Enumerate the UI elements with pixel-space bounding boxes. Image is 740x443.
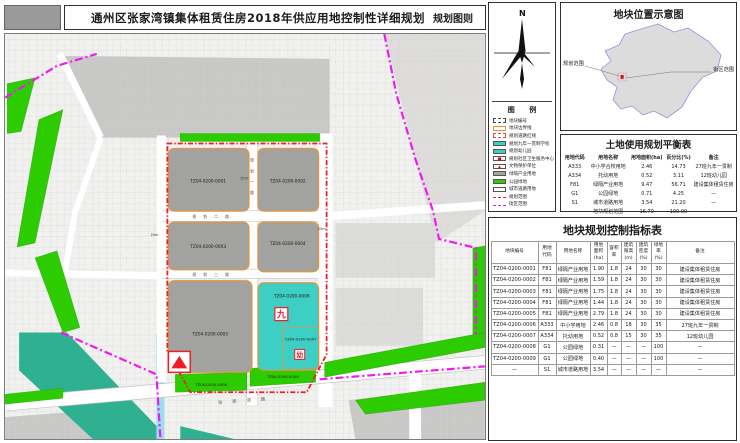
plot-label: TZ04-0200-0006 (273, 294, 310, 300)
kindergarten-glyph: 幼 (296, 350, 303, 359)
title-bar-stamp-box (4, 5, 61, 30)
legend-label: 街区范围 (509, 201, 527, 207)
legend-item: 街区范围 (493, 201, 555, 209)
legend-item: 绿隔产业用地 (493, 170, 555, 178)
legend-label: 城市道路用地 (509, 186, 536, 192)
plot-label: TZ04-0200-0005 (191, 332, 228, 338)
plot-label: TZ04-0200-0001 (189, 178, 226, 184)
location-map-panel: 地块位置示意图 规划范围 街区范围 (560, 2, 737, 131)
legend-item: 规划道路红线 (493, 132, 555, 140)
legend-swatch-icon (493, 141, 506, 146)
block-scope-label: 街区范围 (713, 65, 734, 73)
land-use-balance-table: 用地代码用地名称用地面积(ha)百分比(%)备注A333中小学合校用地2.461… (563, 153, 735, 216)
legend-swatch-icon (493, 187, 506, 192)
table-row: TZ04-0200-0002F81绿隔产业用地1.591.8243030建设集体… (491, 275, 734, 286)
planning-map-canvas: 九 幼 TZ04-0200-0001 TZ04-0200-0002 TZ04-0… (5, 34, 485, 439)
planning-scope-label: 规划范围 (563, 59, 584, 67)
road-label: 规划三路 (192, 272, 236, 277)
table-row: TZ04-0200-0003F81绿隔产业用地1.751.8243030建设集体… (491, 286, 734, 297)
legend-label: 规划九年一贯制学校 (509, 141, 550, 147)
compass-north-label: N (519, 9, 526, 18)
page-title: 通州区张家湾镇集体租赁住房2018年供应用地控制性详细规划 (91, 10, 425, 26)
legend-title: 图 例 (495, 105, 555, 115)
road-label: 规划二路 (192, 214, 236, 219)
plot-label: TZ04-0200-0009 (266, 374, 299, 379)
sheet-type-label: 规划图则 (433, 10, 473, 25)
table-row: TZ04-0200-0009G1公园绿地0.40———100— (491, 353, 734, 364)
legend-swatch-icon: ■ (493, 156, 506, 161)
planning-scope-dot (621, 75, 624, 79)
planning-map: 九 幼 TZ04-0200-0001 TZ04-0200-0002 TZ04-0… (4, 33, 486, 440)
table-row: TZ04-0200-0004F81绿隔产业用地1.441.8243030建设集体… (491, 297, 734, 308)
legend-label: 绿隔产业用地 (509, 171, 536, 177)
divider (492, 101, 552, 102)
legend: 地块编号地块边界线规划道路红线规划九年一贯制学校规划幼儿园■规划社区卫生服务中心… (489, 117, 555, 208)
table-row: A334托幼用地0.523.1112班幼儿园 (563, 171, 735, 180)
legend-item: 规划幼儿园 (493, 147, 555, 155)
nine-year-school-glyph: 九 (276, 309, 286, 321)
legend-swatch-icon (493, 118, 506, 123)
road-width-label: 15m (240, 176, 249, 180)
legend-label: 公园绿地 (509, 179, 527, 185)
table-row: TZ04-0200-0001F81绿隔产业用地1.901.8243030建设集体… (491, 264, 734, 275)
legend-swatch-icon (493, 171, 506, 176)
legend-label: 地块编号 (509, 118, 527, 124)
plot-label: TZ04-0200-0002 (269, 178, 306, 184)
legend-swatch-icon (493, 149, 506, 154)
legend-item: 地块编号 (493, 117, 555, 125)
table-row: S1城市道路用地3.5421.20— (563, 198, 735, 207)
legend-item: 公园绿地 (493, 178, 555, 186)
legend-label: 规划幼儿园 (509, 148, 532, 154)
legend-item: ▲文物保护单位 (493, 163, 555, 171)
legend-item: 城市道路用地 (493, 185, 555, 193)
title-bar: 通州区张家湾镇集体租赁住房2018年供应用地控制性详细规划 规划图则 (64, 5, 486, 30)
table-row: —S1城市道路用地3.54————— (491, 364, 734, 375)
table-row: TZ04-0200-0006A333中小学用地2.460.818303527班九… (491, 319, 734, 330)
legend-item: 规划范围 (493, 193, 555, 201)
table-row: 地块规划范围16.70100.00— (563, 207, 735, 216)
legend-swatch-icon (493, 197, 506, 198)
plot-label: TZ04-0200-0007 (284, 336, 317, 341)
plot-label: TZ04-0200-0003 (189, 244, 226, 250)
legend-swatch-icon: ▲ (493, 164, 506, 169)
plot-indicator-panel: 地块规划控制指标表 地块编号用地 代码用地名称用地 面积 (ha)容积 率建筑 … (488, 217, 737, 441)
table-row: TZ04-0200-0005F81绿隔产业用地2.791.8243030建设集体… (491, 308, 734, 319)
legend-item: ■规划社区卫生服务中心 (493, 155, 555, 163)
legend-swatch-icon (493, 133, 506, 138)
balance-table-title: 土地使用规划平衡表 (561, 137, 736, 151)
legend-label: 规划社区卫生服务中心 (509, 156, 554, 162)
legend-item: 规划九年一贯制学校 (493, 140, 555, 148)
table-row: TZ04-0200-0007A334托幼用地0.520.815303512班幼儿… (491, 331, 734, 342)
table-row: F81绿隔产业用地9.4756.71建设集体租赁住房 (563, 180, 735, 189)
road-width-label: 20m (150, 233, 159, 237)
plot-indicator-table: 地块编号用地 代码用地名称用地 面积 (ha)容积 率建筑 限高 (m)建筑 密… (491, 241, 735, 376)
legend-item: 地块边界线 (493, 125, 555, 133)
table-row: A333中小学合校用地2.4614.7327班九年一贯制 (563, 162, 735, 171)
compass: N (489, 3, 555, 95)
land-use-balance-panel: 土地使用规划平衡表 用地代码用地名称用地面积(ha)百分比(%)备注A333中小… (560, 134, 737, 212)
legend-label: 文物保护单位 (509, 163, 536, 169)
legend-swatch-icon (493, 126, 506, 131)
compass-legend-panel: N 图 例 地块编号地块边界线规划道路红线规划九年一贯制学校规划幼儿园■规划社区… (488, 2, 556, 212)
location-map-title: 地块位置示意图 (561, 6, 736, 21)
planning-sheet: { "title_bar": { "title": "通州区张家湾镇集体租赁住房… (0, 0, 740, 443)
plot-label: TZ04-0200-0004 (269, 241, 306, 247)
legend-label: 规划范围 (509, 194, 527, 200)
plot-label: TZ04-0200-0008 (194, 382, 227, 387)
legend-swatch-icon (493, 205, 506, 206)
legend-label: 地块边界线 (509, 125, 532, 131)
table-row: TZ04-0200-0008G1公园绿地0.31———100— (491, 342, 734, 353)
indicator-table-title: 地块规划控制指标表 (489, 222, 736, 238)
compass-rose-icon (502, 19, 535, 89)
district-outline (601, 24, 721, 118)
location-map: 规划范围 街区范围 (561, 21, 736, 129)
table-row: G1公园绿地0.714.25— (563, 189, 735, 198)
legend-label: 规划道路红线 (509, 133, 536, 139)
legend-swatch-icon (493, 179, 506, 184)
road-width-label: 25m (318, 227, 327, 231)
